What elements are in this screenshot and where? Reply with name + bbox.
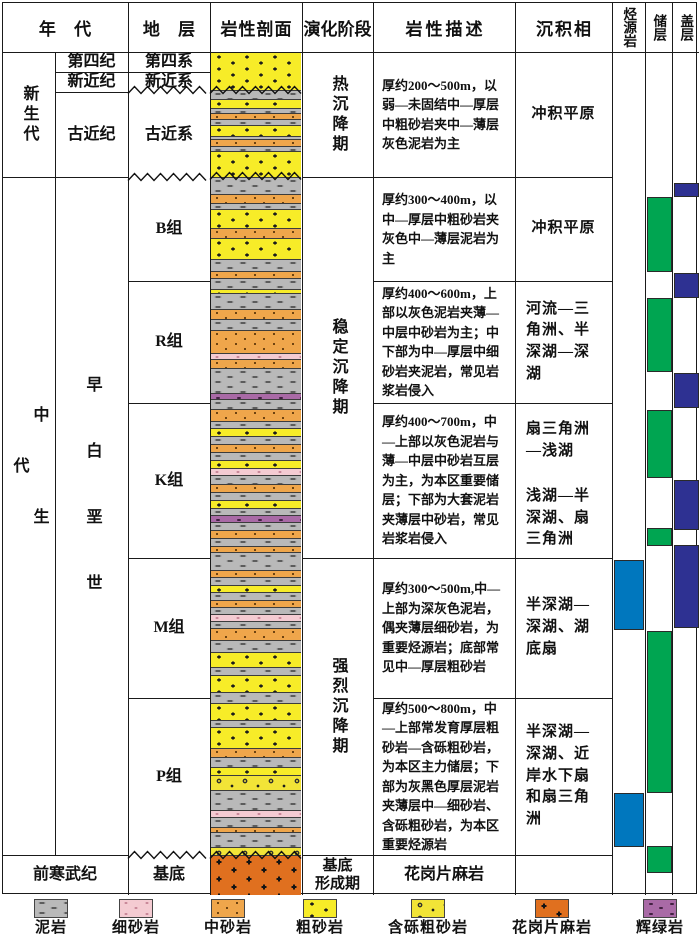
lithology-layer-coarse xyxy=(211,209,301,228)
grid-hline xyxy=(373,698,612,699)
lithology-layer-mud xyxy=(211,293,301,309)
seal-column-block xyxy=(674,183,699,197)
lithology-layer-mud xyxy=(211,757,301,767)
lithology-layer-mud xyxy=(211,522,301,530)
header-reservoir: 储层 xyxy=(645,2,672,52)
lithology-layer-mud xyxy=(211,259,301,271)
wavy-unconformity-line xyxy=(210,85,302,95)
lithology-layer-mud xyxy=(211,538,301,546)
lithology-layer-med xyxy=(211,444,301,452)
desc-p: 厚约500～800m，中—上部常发育厚层粗砂岩—含砾粗砂岩，为本区主力储层；下部… xyxy=(373,698,515,855)
grid-hline xyxy=(373,403,612,404)
grid-hline xyxy=(302,855,612,856)
lithology-layer-mud xyxy=(211,832,301,847)
reservoir-column-block xyxy=(647,631,672,793)
lithology-layer-coarse xyxy=(211,675,301,692)
legend: 泥岩细砂岩中砂岩粗砂岩含砾粗砂岩花岗片麻岩辉绿岩 xyxy=(34,899,684,941)
lithology-layer-mud xyxy=(211,368,301,393)
stratum-r: R组 xyxy=(128,281,210,403)
stratum-b: B组 xyxy=(128,177,210,281)
lithology-layer-mud xyxy=(211,640,301,652)
reservoir-column xyxy=(647,52,672,895)
stratum-basement: 基底 xyxy=(128,855,210,895)
lithology-layer-coarse xyxy=(211,460,301,468)
lithology-layer-mud xyxy=(211,552,301,570)
stratum-paleogene: 古近系 xyxy=(128,92,210,177)
wavy-unconformity-line xyxy=(128,85,210,95)
lithology-layer-med xyxy=(211,228,301,238)
lithology-layer-mud xyxy=(211,817,301,827)
legend-swatch-coarse xyxy=(303,899,337,918)
legend-label: 细砂岩 xyxy=(112,919,160,937)
lithology-layer-mud xyxy=(211,607,301,614)
lithology-layer-mud xyxy=(211,492,301,500)
header-source-rock: 烃源岩 xyxy=(612,2,645,52)
stage-intense-subsidence: 强烈沉降期 xyxy=(302,558,373,855)
lithology-layer-med xyxy=(211,194,301,203)
era-cenozoic: 新生代 xyxy=(2,52,55,177)
grid-hline xyxy=(2,52,699,53)
grid-hline xyxy=(128,698,210,699)
lithology-layer-pebbly xyxy=(211,775,301,790)
lithology-layer-med xyxy=(211,409,301,421)
source-rock-column-block xyxy=(614,560,645,630)
wavy-unconformity-line xyxy=(128,850,210,860)
lithology-layer-mud xyxy=(211,278,301,289)
legend-label: 辉绿岩 xyxy=(636,919,684,937)
lithology-layer-fine xyxy=(211,468,301,475)
legend-label: 花岗片麻岩 xyxy=(512,919,592,937)
legend-item-gneiss: 花岗片麻岩 xyxy=(512,899,592,937)
lithology-layer-med xyxy=(211,600,301,607)
source-rock-column xyxy=(614,52,645,895)
lithology-layer-coarse xyxy=(211,500,301,508)
grid-hline xyxy=(128,403,210,404)
lithology-layer-gneiss xyxy=(211,855,301,895)
grid-vline xyxy=(302,2,303,895)
lithology-layer-fine xyxy=(211,810,301,817)
period-quaternary: 第四纪 xyxy=(55,52,128,72)
reservoir-column-block xyxy=(647,846,672,873)
lithology-layer-coarse xyxy=(211,125,301,136)
header-lithology-description: 岩性描述 xyxy=(373,2,515,52)
lithology-layer-mud xyxy=(211,592,301,600)
lithology-layer-coarse xyxy=(211,703,301,720)
header-evolution-stage: 演化阶段 xyxy=(302,2,373,52)
header-seal: 盖层 xyxy=(672,2,699,52)
lithology-layer-med xyxy=(211,139,301,146)
legend-swatch-pebbly xyxy=(411,899,445,918)
lithology-layer-med xyxy=(211,359,301,368)
facies-k-upper: 扇三角洲—浅湖 xyxy=(515,403,612,479)
legend-item-pebbly: 含砾粗砂岩 xyxy=(388,899,468,937)
period-early-cretaceous: 早白垩世 xyxy=(55,368,128,648)
lithology-layer-fine xyxy=(211,614,301,621)
lithology-layer-coarse xyxy=(211,238,301,259)
stage-stable-subsidence: 稳定沉降期 xyxy=(302,177,373,558)
legend-swatch-fine xyxy=(119,899,153,918)
stratum-k: K组 xyxy=(128,403,210,558)
facies-p: 半深湖—深湖、近岸水下扇和扇三角洲 xyxy=(515,698,612,855)
grid-vline xyxy=(515,2,516,895)
grid-vline xyxy=(55,52,56,855)
legend-label: 含砾粗砂岩 xyxy=(388,919,468,937)
facies-r: 河流—三角洲、半深湖—深湖 xyxy=(515,281,612,403)
lithology-layer-med xyxy=(211,484,301,492)
lithology-layer-med xyxy=(211,748,301,757)
seal-column-block xyxy=(674,545,699,628)
lithology-layer-mud xyxy=(211,667,301,675)
seal-column-block xyxy=(674,273,699,298)
lithology-layer-med xyxy=(211,530,301,538)
seal-column-block xyxy=(674,373,699,408)
lithology-layer-mud xyxy=(211,692,301,703)
stratum-quaternary: 第四系 xyxy=(128,52,210,72)
grid-hline xyxy=(302,558,612,559)
lithology-layer-med xyxy=(211,330,301,353)
grid-vline xyxy=(373,2,374,895)
facies-b: 冲积平原 xyxy=(515,177,612,281)
stage-thermal-subsidence: 热沉降期 xyxy=(302,52,373,177)
source-rock-column-block xyxy=(614,793,645,847)
grid-hline xyxy=(55,72,210,73)
reservoir-column-block xyxy=(647,298,672,372)
seal-column-block xyxy=(674,480,699,530)
legend-swatch-gneiss xyxy=(535,899,569,918)
grid-hline xyxy=(2,177,128,178)
reservoir-column-block xyxy=(647,528,672,546)
lithology-layer-mud xyxy=(211,475,301,484)
lithology-layer-mud xyxy=(211,399,301,409)
header-sedimentary-facies: 沉积相 xyxy=(515,2,612,52)
header-strata: 地 层 xyxy=(128,2,210,52)
lithology-layer-mud xyxy=(211,452,301,460)
period-paleogene: 古近纪 xyxy=(55,92,128,177)
legend-item-med: 中砂岩 xyxy=(204,899,252,937)
lithology-layer-coarse xyxy=(211,727,301,748)
legend-label: 粗砂岩 xyxy=(296,919,344,937)
lithology-layer-mud xyxy=(211,720,301,727)
desc-k: 厚约400～700m，中—上部以灰色泥岩与薄—中层中砂岩互层为主，为本区重要储层… xyxy=(373,403,515,558)
lithology-layer-coarse xyxy=(211,428,301,436)
lithology-layer-med xyxy=(211,628,301,640)
lithology-layer-mud xyxy=(211,577,301,585)
lithology-layer-mud xyxy=(211,421,301,428)
desc-b: 厚约300～400m，以中—厚层中粗砂岩夹灰色中—薄层泥岩为主 xyxy=(373,177,515,281)
legend-swatch-mud xyxy=(34,899,68,918)
lithology-layer-diabase xyxy=(211,515,301,522)
grid-vline xyxy=(128,2,129,895)
facies-cenozoic: 冲积平原 xyxy=(515,52,612,177)
lithology-layer-med xyxy=(211,309,301,319)
header-era: 年 代 xyxy=(2,2,128,52)
desc-cenozoic: 厚约200～500m，以弱—未固结中—厚层中粗砂岩夹中—薄层灰色泥岩为主 xyxy=(373,52,515,177)
era-mesozoic: 中生代 xyxy=(2,382,55,634)
lithology-layer-mud xyxy=(211,319,301,330)
lithology-layer-med xyxy=(211,570,301,577)
facies-k-lower: 浅湖—半深湖、扇三角洲 xyxy=(515,479,612,558)
grid-hline xyxy=(302,177,612,178)
lithology-layer-mud xyxy=(211,790,301,810)
desc-r: 厚约400～600m，上部以灰色泥岩夹薄—中层中砂岩为主；中下部为中—厚层中细砂… xyxy=(373,281,515,403)
stratigraphic-column-chart: 年 代 地 层 岩性剖面 演化阶段 岩性描述 沉积相 烃源岩 储层 盖层 泥岩细… xyxy=(0,0,700,943)
period-neogene: 新近纪 xyxy=(55,72,128,92)
facies-m: 半深湖—深湖、湖底扇 xyxy=(515,558,612,698)
stage-basement-formation: 基底 形成期 xyxy=(302,855,373,895)
stratum-m: M组 xyxy=(128,558,210,698)
stratum-p: P组 xyxy=(128,698,210,855)
lithology-layer-med xyxy=(211,271,301,278)
lithology-layer-coarse xyxy=(211,767,301,775)
grid-hline xyxy=(128,281,210,282)
legend-item-mud: 泥岩 xyxy=(34,899,68,937)
legend-label: 泥岩 xyxy=(35,919,67,937)
grid-hline xyxy=(128,558,210,559)
grid-hline xyxy=(2,855,128,856)
lithology-layer-coarse xyxy=(211,99,301,108)
legend-item-fine: 细砂岩 xyxy=(112,899,160,937)
wavy-unconformity-line xyxy=(210,171,302,181)
lithology-layer-mud xyxy=(211,508,301,515)
grid-hline xyxy=(373,281,612,282)
legend-item-coarse: 粗砂岩 xyxy=(296,899,344,937)
legend-swatch-med xyxy=(211,899,245,918)
legend-item-diabase: 辉绿岩 xyxy=(636,899,684,937)
lithology-layer-coarse xyxy=(211,585,301,592)
reservoir-column-block xyxy=(647,410,672,478)
era-precambrian: 前寒武纪 xyxy=(2,855,128,895)
lithology-layer-coarse xyxy=(211,652,301,667)
wavy-unconformity-line xyxy=(210,850,302,860)
seal-column xyxy=(674,52,699,895)
desc-m: 厚约300～500m,中—上部为深灰色泥岩，偶夹薄层细砂岩，为重要烃源岩；底部常… xyxy=(373,558,515,698)
lithology-layer-mud xyxy=(211,436,301,444)
wavy-unconformity-line xyxy=(128,172,210,182)
grid-vline xyxy=(210,2,211,895)
reservoir-column-block xyxy=(647,197,672,272)
header-lithology-profile: 岩性剖面 xyxy=(210,2,302,52)
legend-label: 中砂岩 xyxy=(204,919,252,937)
lithology-layer-mud xyxy=(211,621,301,628)
legend-swatch-diabase xyxy=(643,899,677,918)
grid-hline xyxy=(55,92,128,93)
desc-basement: 花岗片麻岩 xyxy=(373,855,515,895)
